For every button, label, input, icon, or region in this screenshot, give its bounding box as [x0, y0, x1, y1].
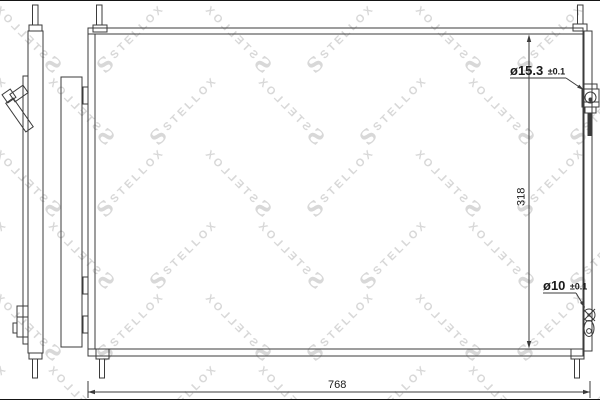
side-shroud-column	[61, 77, 82, 347]
label-port-top: ø15.3 ±0.1	[510, 62, 584, 90]
side-top-pin	[33, 5, 39, 25]
port-bottom-tolerance: ±0.1	[570, 282, 587, 292]
pin-top-left	[97, 5, 103, 25]
svg-text:ø10 ±0.1: ø10 ±0.1	[543, 277, 587, 294]
foot-bottom-right	[571, 349, 584, 359]
side-top-pin-base	[29, 25, 42, 31]
pin-top-right	[578, 5, 584, 24]
fitting-collar	[585, 107, 596, 113]
pin-bottom-left	[100, 359, 105, 378]
dimension-width: 768	[88, 379, 590, 398]
dim-height-arrow-bottom	[527, 341, 531, 349]
dimension-height: 318	[516, 35, 532, 349]
dim-width-value: 768	[328, 379, 346, 391]
left-tab-3	[83, 316, 88, 333]
receiver-drier-tube	[584, 31, 592, 351]
dim-height-value: 318	[516, 188, 528, 206]
port-center	[587, 313, 590, 316]
drawing-canvas: SSTELLOXSSTELLOXSSTELLOXSSTELLOXSSTELLOX…	[0, 0, 600, 400]
core-outline	[88, 28, 583, 356]
fitting-valve	[589, 98, 593, 102]
port-fitting-bottom	[583, 309, 595, 337]
side-bottom-pin-base	[29, 353, 42, 359]
port-fitting-top	[582, 84, 599, 136]
foot-bottom-left	[96, 349, 109, 359]
port-lug-hole	[587, 329, 592, 334]
left-tab-1	[83, 87, 88, 104]
svg-text:ø15.3 ±0.1: ø15.3 ±0.1	[510, 62, 565, 79]
side-bottom-pin	[33, 359, 38, 378]
pin-bottom-right	[575, 359, 580, 378]
port-top-value: ø15.3	[510, 63, 543, 78]
fitting-stem	[588, 113, 593, 136]
condenser-technical-drawing: 318 768 ø15.3 ±0.1 ø10 ±0.1	[0, 1, 600, 399]
dim-height-arrow-top	[527, 35, 531, 43]
side-connector	[2, 85, 33, 132]
port-top-tolerance: ±0.1	[548, 67, 565, 77]
label-port-bottom: ø10 ±0.1	[543, 277, 587, 308]
port-bottom-value: ø10	[543, 278, 565, 293]
side-bracket-notch	[13, 323, 17, 333]
dim-width-arrow-right	[583, 390, 590, 395]
dim-width-arrow-left	[88, 390, 95, 395]
side-body	[28, 31, 43, 353]
connector-pipe	[6, 98, 33, 132]
side-view	[2, 5, 82, 378]
left-tab-2	[83, 277, 88, 294]
fitting-cap	[583, 84, 597, 89]
